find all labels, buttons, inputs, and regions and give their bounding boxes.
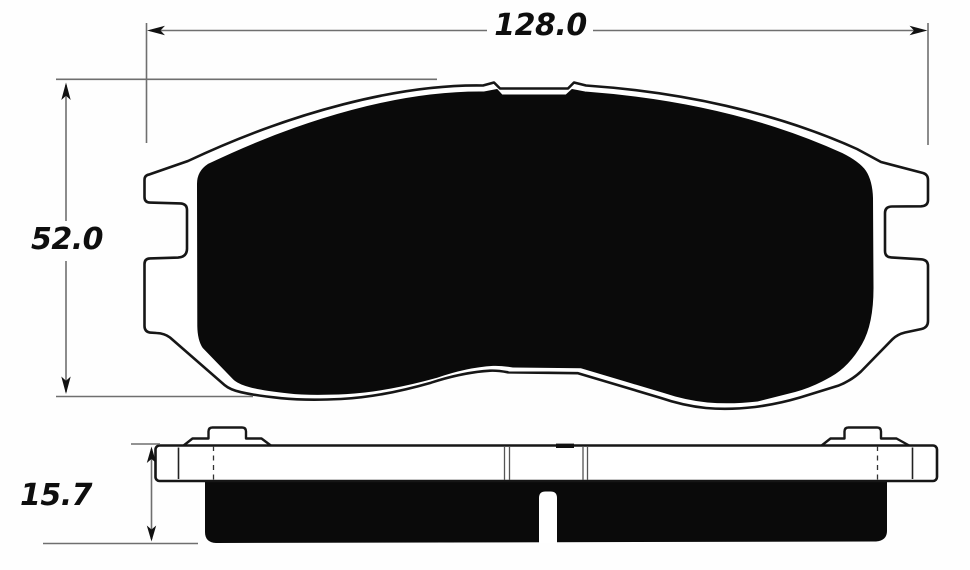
- front-view: [145, 83, 929, 409]
- plate-top-mark: [556, 444, 574, 448]
- side-view: [156, 428, 938, 544]
- retention-clip-left: [183, 428, 272, 447]
- friction-slot: [539, 492, 557, 544]
- technical-drawing: 128.0 52.0 15.7: [0, 0, 970, 570]
- backing-plate-side: [156, 446, 938, 482]
- retention-clip-right: [821, 428, 910, 447]
- friction-material: [197, 90, 873, 403]
- drawing-canvas: [0, 0, 970, 570]
